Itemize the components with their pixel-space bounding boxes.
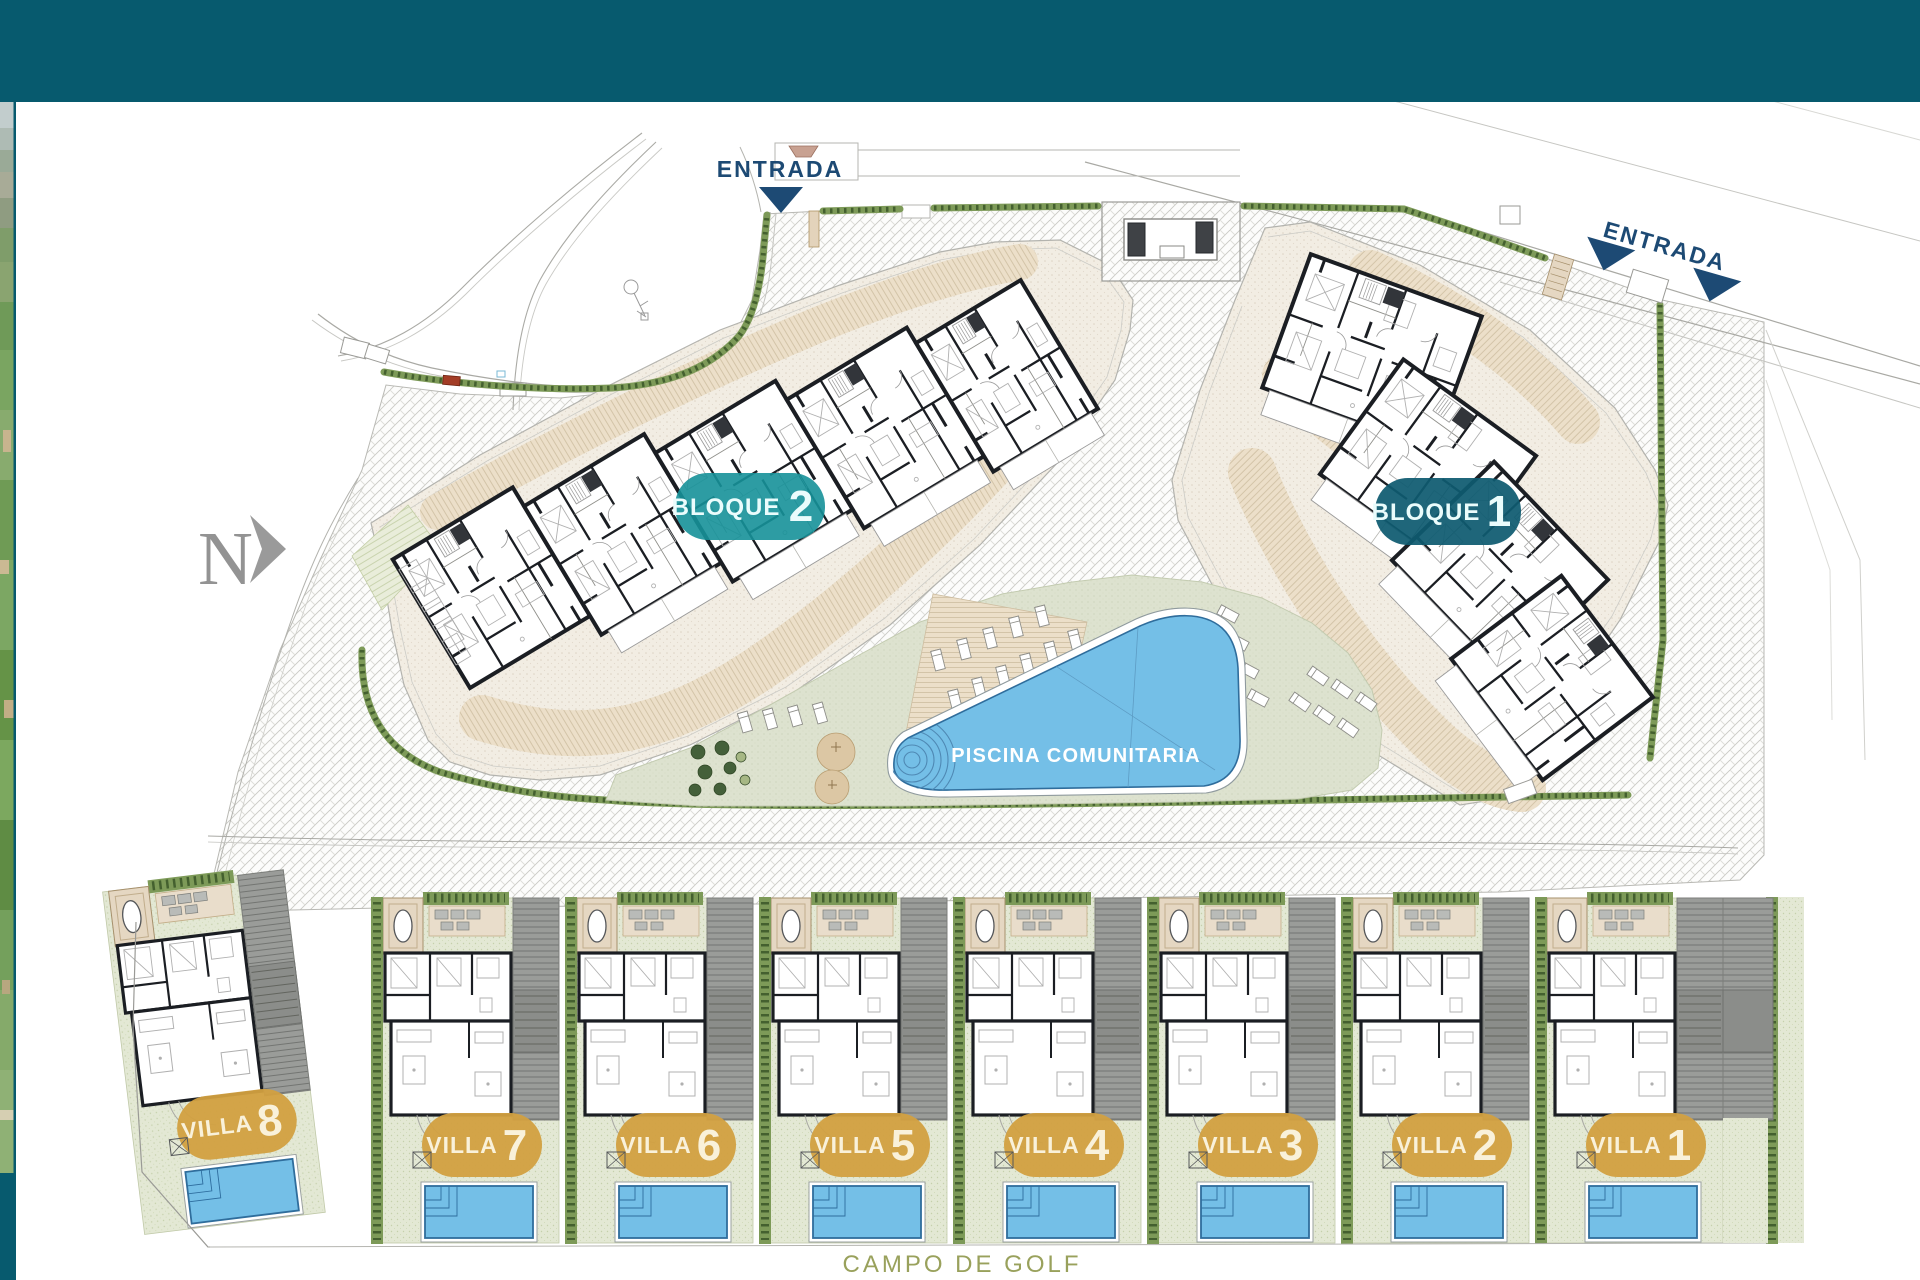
svg-text:VILLA: VILLA bbox=[814, 1132, 885, 1158]
svg-text:VILLA: VILLA bbox=[1202, 1132, 1273, 1158]
svg-text:VILLA: VILLA bbox=[1590, 1132, 1661, 1158]
svg-text:CAMPO DE GOLF: CAMPO DE GOLF bbox=[842, 1251, 1081, 1278]
svg-text:BLOQUE: BLOQUE bbox=[672, 494, 781, 521]
svg-text:2: 2 bbox=[789, 482, 813, 531]
svg-text:PISCINA COMUNITARIA: PISCINA COMUNITARIA bbox=[951, 745, 1200, 767]
svg-text:7: 7 bbox=[503, 1121, 527, 1170]
svg-text:3: 3 bbox=[1279, 1121, 1303, 1170]
svg-text:1: 1 bbox=[1667, 1121, 1691, 1170]
svg-text:5: 5 bbox=[891, 1121, 915, 1170]
svg-text:4: 4 bbox=[1085, 1121, 1110, 1170]
svg-text:VILLA: VILLA bbox=[1396, 1132, 1467, 1158]
svg-text:2: 2 bbox=[1473, 1121, 1497, 1170]
svg-text:ENTRADA: ENTRADA bbox=[717, 156, 843, 182]
svg-text:1: 1 bbox=[1487, 487, 1511, 536]
svg-text:BLOQUE: BLOQUE bbox=[1372, 499, 1481, 526]
svg-text:6: 6 bbox=[697, 1121, 721, 1170]
svg-text:VILLA: VILLA bbox=[1008, 1132, 1079, 1158]
svg-text:VILLA: VILLA bbox=[620, 1132, 691, 1158]
svg-text:VILLA: VILLA bbox=[426, 1132, 497, 1158]
svg-text:N: N bbox=[198, 517, 253, 601]
